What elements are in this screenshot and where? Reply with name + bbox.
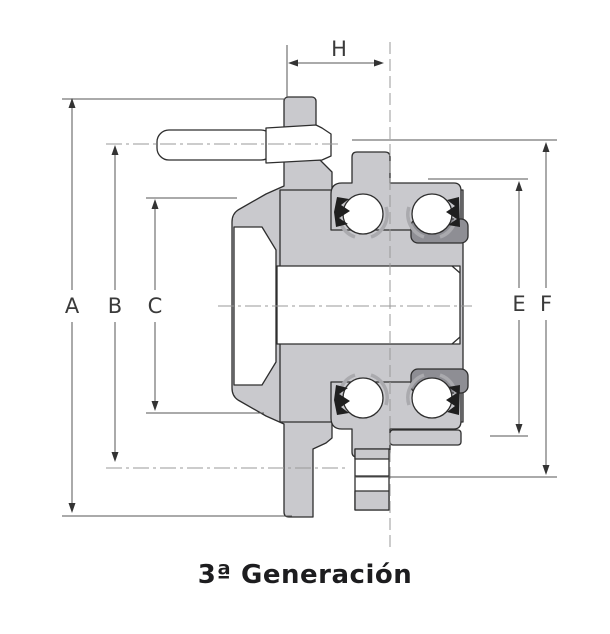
figure-caption: 3ª Generación <box>0 560 610 590</box>
part-body <box>157 97 468 517</box>
dimension-label-h: H <box>331 37 347 61</box>
hub-bearing-diagram: A B C E F H <box>0 0 610 634</box>
dimension-label-e: E <box>512 292 525 316</box>
dimension-label-a: A <box>65 294 80 318</box>
ball <box>412 378 452 418</box>
hub-bore <box>277 266 460 344</box>
dimension-label-b: B <box>108 294 122 318</box>
ball <box>343 378 383 418</box>
hub-bearing-figure-page: A B C E F H 3ª Generación <box>0 0 610 634</box>
mounting-bolt <box>355 449 389 510</box>
dimension-label-c: C <box>148 294 163 318</box>
ball <box>343 194 383 234</box>
dimension-label-f: F <box>540 292 552 316</box>
ball <box>412 194 452 234</box>
knuckle-ear <box>390 430 461 445</box>
